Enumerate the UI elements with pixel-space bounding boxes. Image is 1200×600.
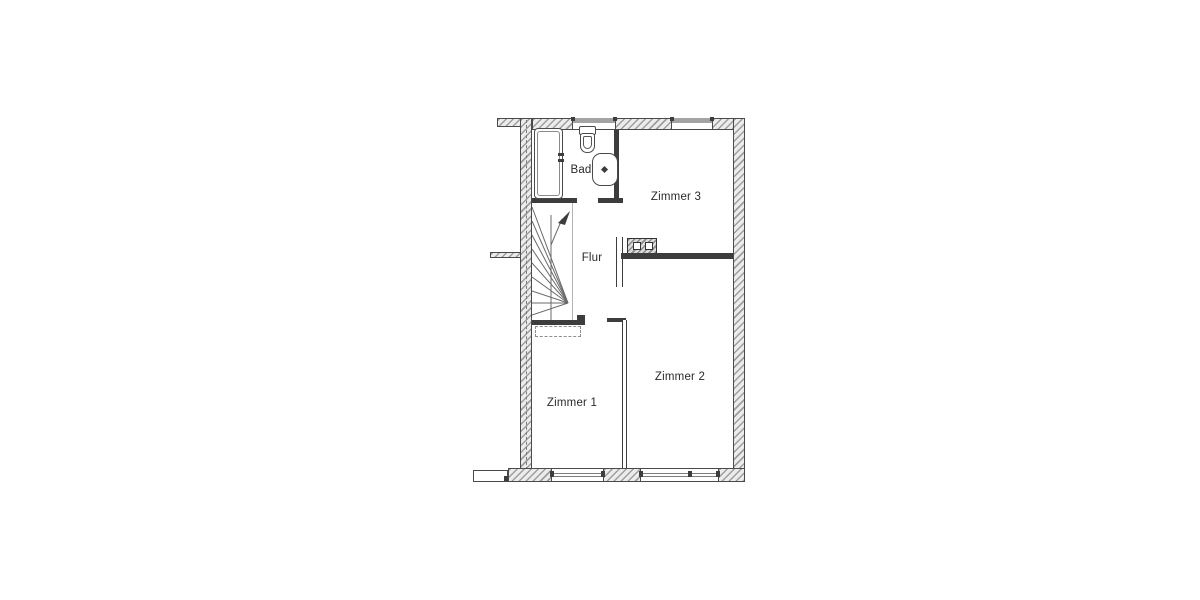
staircase	[532, 203, 573, 320]
stair-below-dashed-outline	[535, 326, 581, 337]
window-tick	[639, 471, 643, 477]
toilet-bowl	[580, 133, 595, 153]
balcony-railing	[473, 470, 508, 482]
bathtub-faucet	[558, 153, 564, 156]
door-jamb-tick	[577, 315, 585, 325]
window-tick	[613, 117, 617, 121]
neighbor-wall-top-extension	[497, 118, 521, 127]
stair-treads	[532, 203, 573, 320]
floor-plan-canvas: Bad Flur Zimmer 1 Zimmer 2 Zimmer 3	[0, 0, 1200, 600]
window-tick	[710, 117, 714, 121]
room-label-flur: Flur	[582, 252, 603, 264]
neighbor-wall-left-stub	[490, 252, 521, 258]
bottom-wall-pier-2	[603, 468, 641, 482]
zimmer3-zimmer2-wall	[621, 253, 733, 259]
window-zimmer1	[552, 468, 603, 482]
window-tick	[670, 117, 674, 121]
bottom-wall-corner	[718, 468, 745, 482]
party-wall-center-line	[526, 120, 527, 480]
stair-up-arrow	[558, 211, 570, 225]
bathtub-faucet	[558, 159, 564, 162]
window-zimmer2	[641, 468, 718, 482]
window-tick	[601, 471, 605, 477]
room-label-bad: Bad	[570, 164, 591, 176]
exterior-wall-right	[733, 118, 745, 482]
window-tick	[571, 117, 575, 121]
room-label-zimmer3: Zimmer 3	[651, 191, 701, 203]
flue-opening	[633, 242, 641, 250]
chimney-flue	[627, 238, 657, 254]
flue-opening	[645, 242, 653, 250]
room-label-zimmer2: Zimmer 2	[655, 371, 705, 383]
zimmer1-zimmer2-wall	[622, 320, 627, 468]
window-mullion-tick	[688, 471, 692, 477]
window-zimmer3	[672, 118, 712, 130]
flur-zimmer3-wall	[616, 237, 623, 287]
room-label-zimmer1: Zimmer 1	[547, 397, 597, 409]
window-tick	[716, 471, 720, 477]
bathtub	[534, 128, 563, 199]
bad-wall-bottom-right	[598, 198, 623, 203]
window-tick	[550, 471, 554, 477]
top-wall-pier-2	[615, 118, 672, 130]
bottom-wall-pier-1	[508, 468, 552, 482]
